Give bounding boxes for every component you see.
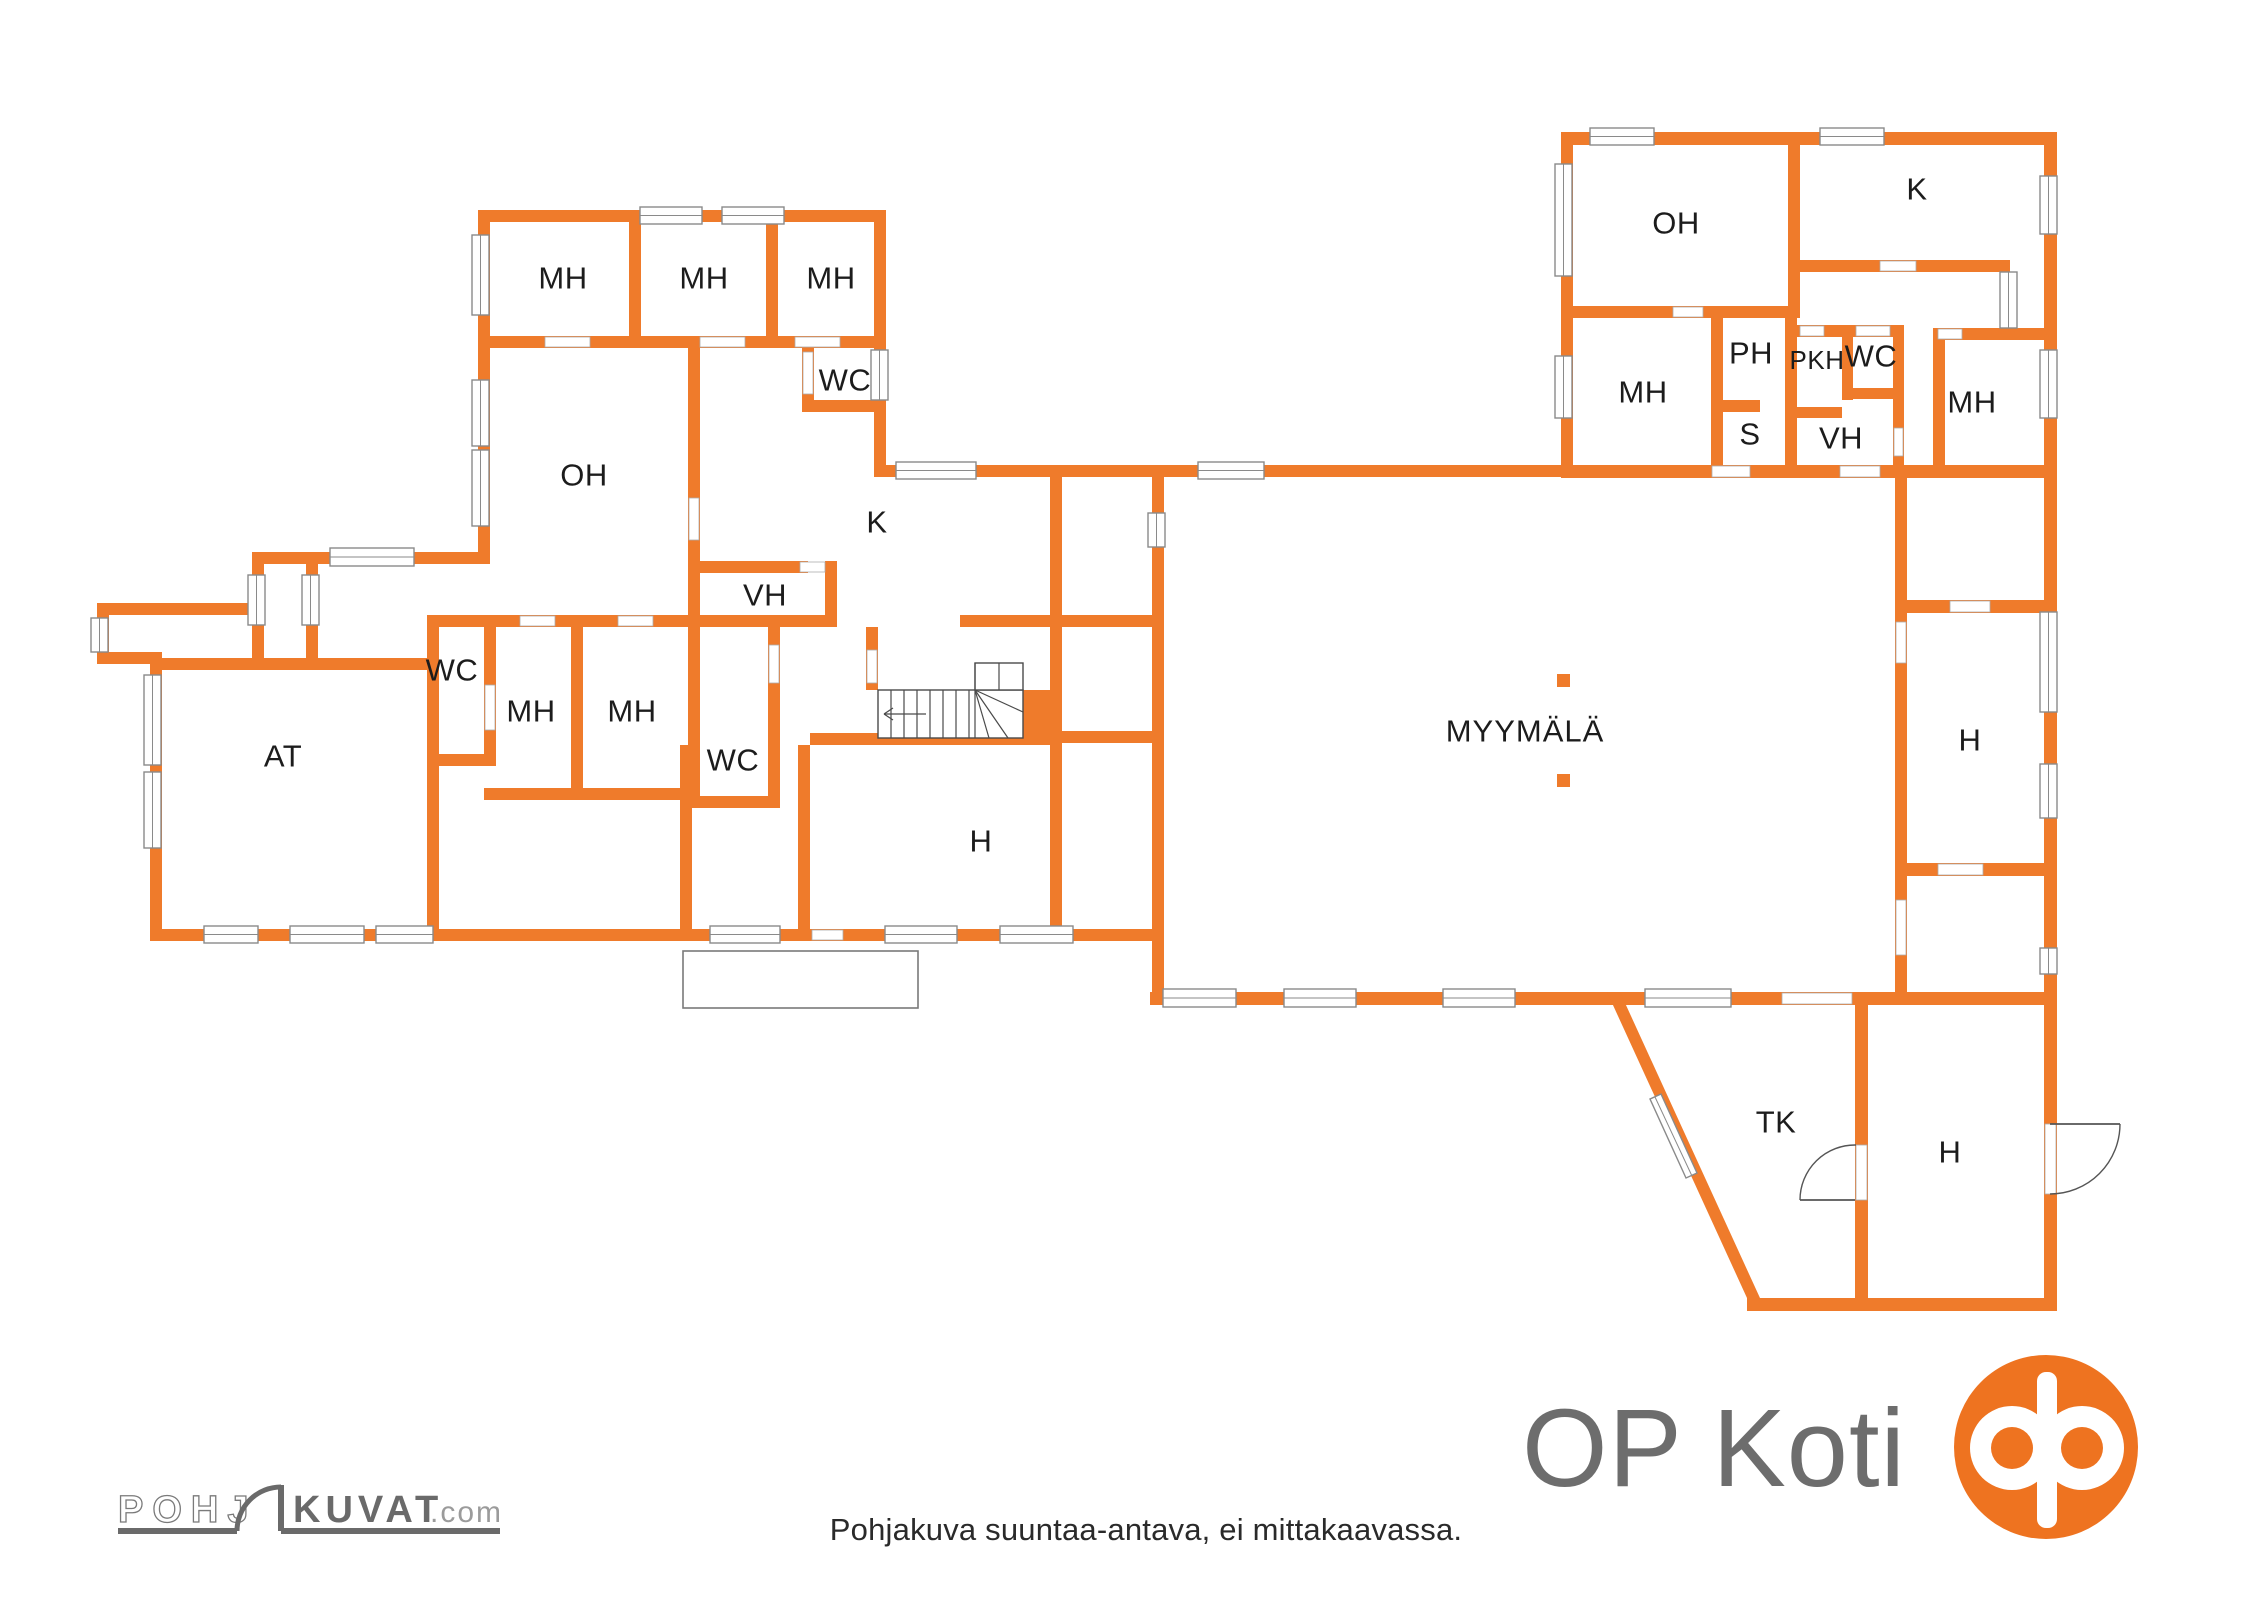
pohjakuvat-logo: POHJ KUVAT .com: [118, 1485, 503, 1531]
room-label-vh-left: VH: [743, 578, 787, 613]
room-label-wc-small: WC: [426, 653, 479, 688]
room-label-h-center: H: [970, 824, 993, 859]
pillar: [1557, 674, 1570, 687]
room-label-mh-5: MH: [607, 694, 656, 729]
room-label-myymala: MYYMÄLÄ: [1446, 714, 1605, 749]
pillar: [1557, 774, 1570, 787]
room-label-at: AT: [264, 739, 302, 774]
h-exit-door-arc: [2050, 1124, 2120, 1194]
room-label-wc-right: WC: [1845, 339, 1898, 374]
room-label-mh-3: MH: [806, 261, 855, 296]
room-label-k-left: K: [866, 505, 887, 540]
windows: [91, 128, 2057, 1178]
op-koti-logo: OP Koti: [1522, 1355, 2138, 1539]
kuvat-text: KUVAT: [293, 1489, 443, 1531]
door-openings: [485, 261, 2056, 1200]
op-group-icon: [1954, 1355, 2138, 1539]
room-label-oh-left: OH: [560, 458, 608, 493]
room-label-mh-4: MH: [506, 694, 555, 729]
room-label-h-bottom: H: [1939, 1135, 1962, 1170]
room-label-wc-top: WC: [819, 363, 872, 398]
room-label-h-right: H: [1959, 723, 1982, 758]
room-label-vh-right: VH: [1819, 421, 1863, 456]
room-label-wc-mid: WC: [707, 743, 760, 778]
floorplan-canvas: MH MH MH WC OH K VH WC MH MH AT WC H MYY…: [0, 0, 2262, 1600]
tk-door-arc: [1800, 1145, 1856, 1200]
room-label-oh-right: OH: [1652, 206, 1700, 241]
room-label-s: S: [1739, 417, 1760, 452]
room-label-ph: PH: [1729, 336, 1773, 371]
op-koti-wordmark: OP Koti: [1522, 1387, 1906, 1510]
room-label-mh-1: MH: [538, 261, 587, 296]
room-label-mh-6: MH: [1618, 375, 1667, 410]
dotcom-text: .com: [430, 1496, 503, 1529]
room-label-k-right: K: [1906, 172, 1927, 207]
porch-outline: [683, 951, 918, 1008]
room-label-tk: TK: [1756, 1105, 1797, 1140]
room-label-mh-2: MH: [679, 261, 728, 296]
disclaimer-text: Pohjakuva suuntaa-antava, ei mittakaavas…: [830, 1512, 1462, 1547]
staircase: [878, 663, 1023, 738]
room-labels: MH MH MH WC OH K VH WC MH MH AT WC H MYY…: [264, 172, 1997, 1170]
room-label-mh-7: MH: [1947, 385, 1996, 420]
room-label-pkh: PKH: [1790, 345, 1845, 375]
